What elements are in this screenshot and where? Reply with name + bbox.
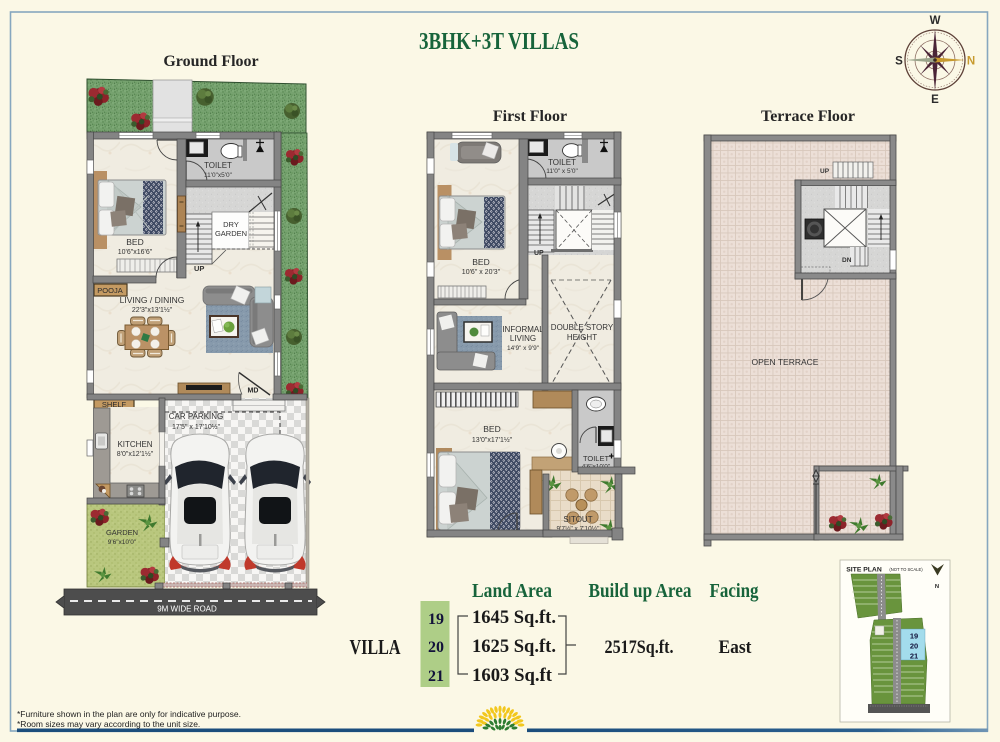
svg-text:Terrace Floor: Terrace Floor [761, 108, 855, 125]
svg-text:8'0"x12'1½": 8'0"x12'1½" [117, 450, 154, 458]
svg-text:DN: DN [842, 257, 852, 264]
svg-text:(NOT TO SCALE): (NOT TO SCALE) [889, 567, 923, 572]
svg-text:1603 Sq.ft: 1603 Sq.ft [472, 665, 553, 686]
svg-text:GARDEN: GARDEN [106, 528, 138, 537]
svg-text:UP: UP [820, 168, 830, 175]
svg-text:KITCHEN: KITCHEN [117, 440, 152, 449]
svg-text:VILLA: VILLA [350, 635, 402, 659]
svg-text:22'3"x13'1½": 22'3"x13'1½" [132, 306, 173, 314]
svg-text:11'0" x 5'0": 11'0" x 5'0" [546, 168, 578, 175]
svg-text:SITOUT: SITOUT [563, 515, 592, 524]
svg-text:DRY: DRY [223, 220, 239, 229]
svg-text:9'6"x10'0": 9'6"x10'0" [108, 539, 137, 546]
svg-text:CAR PARKING: CAR PARKING [169, 412, 224, 421]
svg-text:DOUBLE STORY: DOUBLE STORY [551, 323, 614, 332]
svg-text:19: 19 [910, 632, 918, 641]
svg-text:OPEN TERRACE: OPEN TERRACE [752, 357, 819, 367]
svg-text:17'5" x 17'10½": 17'5" x 17'10½" [172, 423, 221, 431]
svg-text:N: N [967, 56, 975, 68]
svg-text:N: N [935, 584, 939, 590]
svg-text:TOILET: TOILET [548, 158, 576, 167]
svg-text:Build up Area: Build up Area [589, 580, 692, 602]
svg-text:INFORMAL: INFORMAL [502, 325, 544, 334]
svg-text:*Furniture shown in the plan a: *Furniture shown in the plan are only fo… [17, 709, 241, 719]
svg-text:1625 Sq.ft.: 1625 Sq.ft. [472, 636, 556, 657]
svg-text:TOILET: TOILET [204, 161, 232, 170]
svg-text:*Room sizes may vary according: *Room sizes may vary according to the un… [17, 719, 200, 729]
svg-text:GARDEN: GARDEN [215, 229, 247, 238]
svg-text:21: 21 [910, 652, 918, 661]
svg-text:SITE PLAN: SITE PLAN [846, 567, 882, 574]
svg-text:1645 Sq.ft.: 1645 Sq.ft. [472, 607, 556, 628]
svg-text:9M WIDE ROAD: 9M WIDE ROAD [157, 605, 217, 614]
svg-text:HEIGHT: HEIGHT [567, 333, 597, 342]
svg-text:2517Sq.ft.: 2517Sq.ft. [605, 637, 674, 658]
svg-text:W: W [930, 15, 941, 27]
svg-text:Facing: Facing [710, 580, 759, 602]
svg-text:MD: MD [248, 388, 259, 395]
svg-text:10'6" x 20'3": 10'6" x 20'3" [462, 269, 501, 276]
svg-text:Ground Floor: Ground Floor [163, 53, 258, 70]
svg-text:LIVING / DINING: LIVING / DINING [120, 295, 185, 305]
svg-text:BED: BED [483, 424, 500, 434]
svg-text:TOILET: TOILET [583, 454, 610, 463]
svg-text:BED: BED [472, 257, 489, 267]
svg-text:11'0"x5'0": 11'0"x5'0" [204, 172, 233, 179]
svg-text:East: East [719, 637, 753, 658]
svg-text:BED: BED [126, 237, 143, 247]
svg-text:E: E [931, 94, 939, 106]
svg-text:13'0"x17'1½": 13'0"x17'1½" [472, 436, 513, 444]
svg-text:10'6"x16'6": 10'6"x16'6" [118, 249, 153, 256]
svg-text:S: S [895, 56, 903, 68]
svg-text:UP: UP [194, 264, 204, 273]
svg-text:Land Area: Land Area [472, 580, 552, 602]
svg-text:19: 19 [428, 611, 444, 628]
svg-text:20: 20 [910, 642, 918, 651]
svg-text:LIVING: LIVING [510, 334, 536, 343]
svg-text:3BHK+3T VILLAS: 3BHK+3T VILLAS [419, 29, 579, 55]
svg-text:20: 20 [428, 639, 444, 656]
svg-text:POOJA: POOJA [97, 286, 122, 295]
svg-text:First Floor: First Floor [493, 108, 567, 125]
svg-text:14'9" x 9'9": 14'9" x 9'9" [507, 345, 540, 352]
svg-text:21: 21 [428, 668, 444, 685]
